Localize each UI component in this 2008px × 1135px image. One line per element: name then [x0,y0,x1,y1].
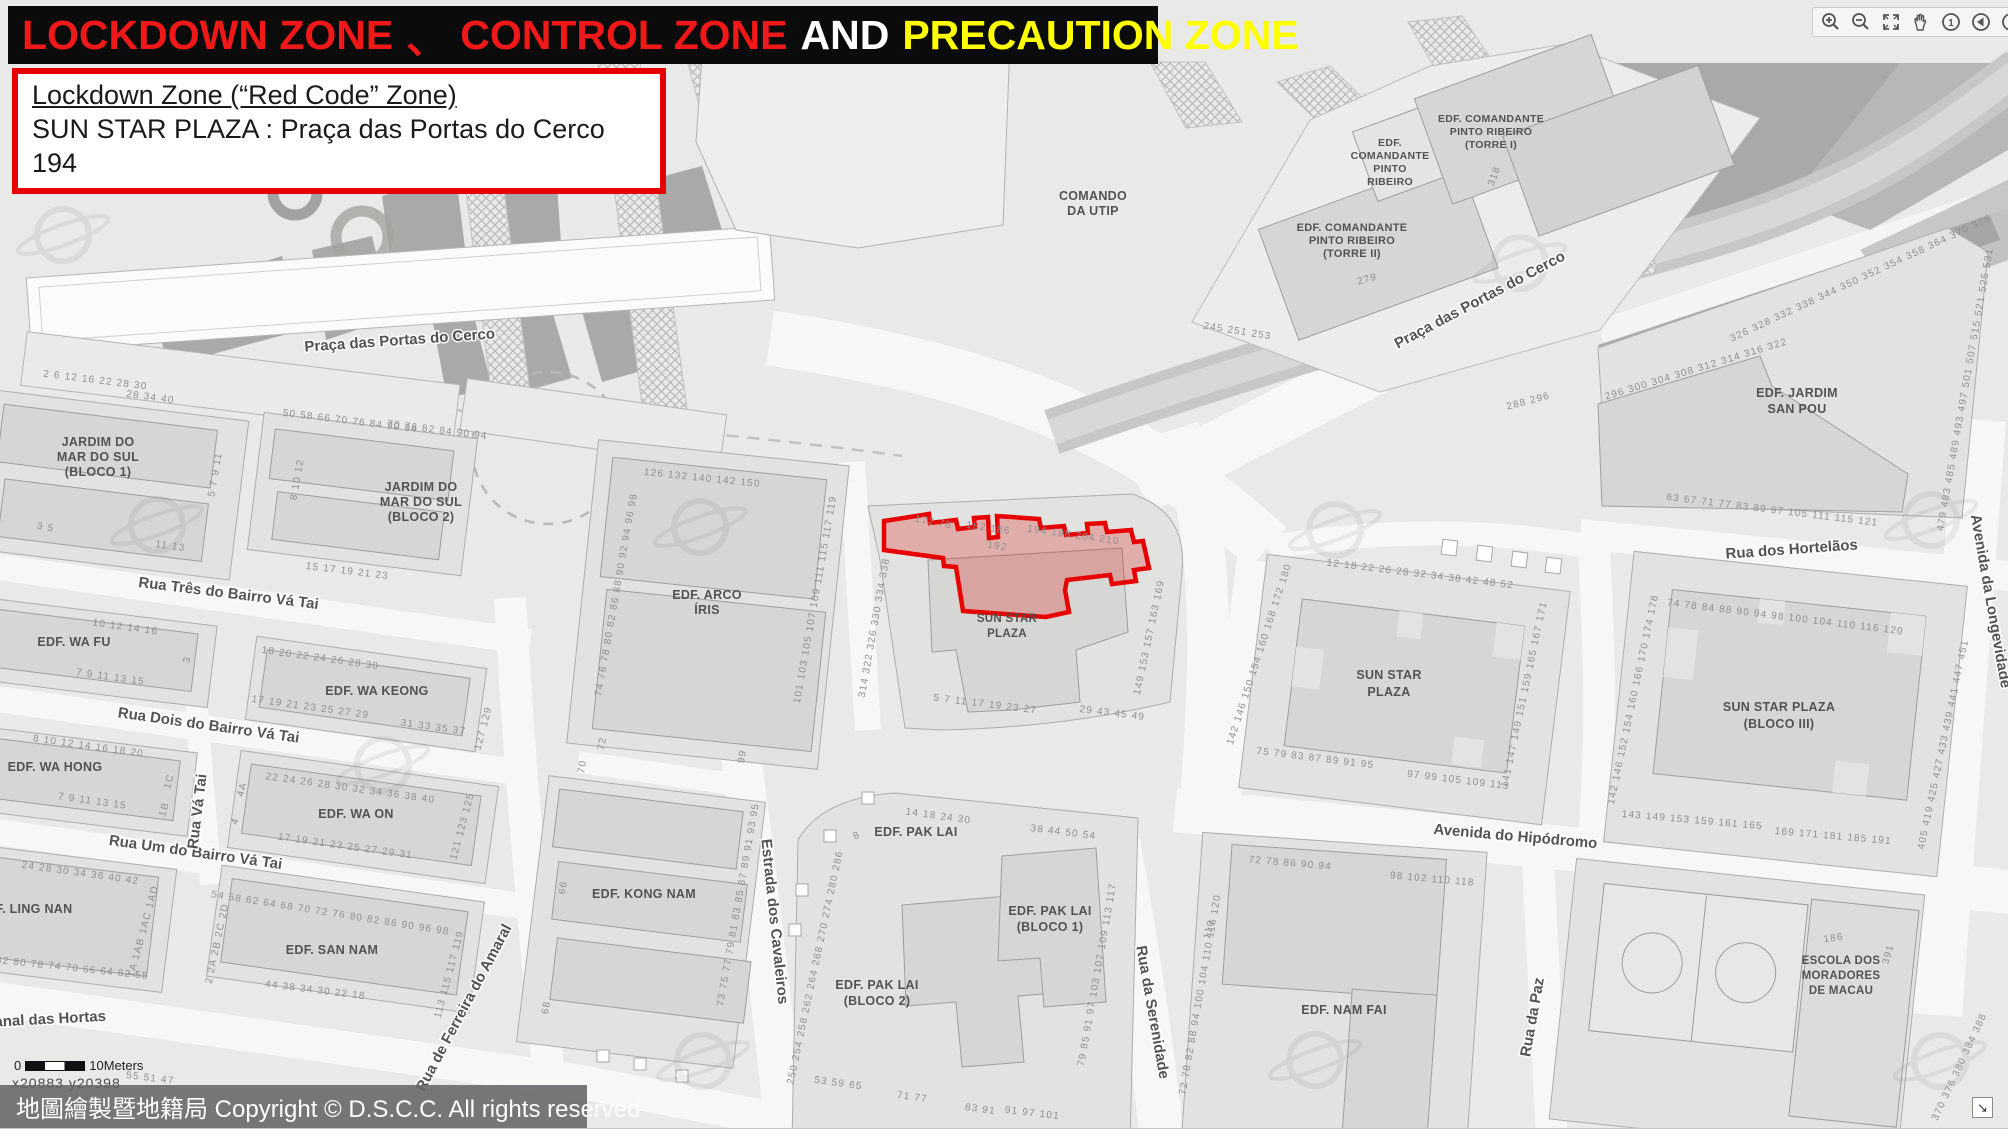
next-view-button[interactable] [1999,10,2008,34]
title-part: AND [801,12,890,59]
building-label: SAN POU [1767,402,1826,416]
screenshot-stage: Praça das Portas do CercoPraça das Porta… [0,0,2008,1135]
parcel-number: 68 [540,1000,553,1015]
building-label: EDF. PAK LAI [835,978,918,992]
zoom-out-icon [1850,11,1872,33]
building-label: (TORRE II) [1323,248,1381,260]
hand-pan-icon [1910,11,1932,33]
info-box-address: SUN STAR PLAZA : Praça das Portas do Cer… [32,113,646,181]
building-label: (BLOCO III) [1744,717,1815,731]
full-extent-button[interactable] [1879,10,1903,34]
building-label: MORADORES [1802,970,1881,982]
scale-zero-label: 0 [14,1058,21,1073]
building-label: EDF. WA ON [318,807,393,821]
building-label: EDF. SAN NAM [286,943,379,957]
building-label: EDF. PAK LAI [874,825,957,839]
building-label: EDF. NAM FAI [1301,1003,1387,1017]
building-label: DE MACAU [1809,985,1873,997]
building-label: SUN STAR [1356,668,1421,682]
svg-text:1: 1 [1948,18,1954,29]
building-label: SUN STAR PLAZA [1723,700,1835,714]
building-label: EDF. WA FU [37,635,110,649]
parcel-number: 72 [596,736,609,751]
building-label: PLAZA [1367,685,1410,699]
building-label: ÍRIS [694,602,720,617]
building-label: (TORRE I) [1465,139,1517,151]
title-part: CONTROL ZONE [460,12,787,59]
building-label: JARDIM DO [62,435,135,449]
parcel-number: 70 [576,759,589,774]
building-label: PINTO [1373,163,1406,175]
resize-handle-button[interactable]: ↘ [1972,1097,1993,1118]
building-label: EDF. ARCO [672,588,742,602]
zoom-in-icon [1820,11,1842,33]
building-label: EDF. WA HONG [8,760,103,774]
initial-view-icon: 1 [1940,11,1962,33]
info-box-heading: Lockdown Zone (“Red Code” Zone) [32,79,646,113]
building-label: EDF. JARDIM [1756,386,1838,400]
back-arrow-icon [1970,11,1992,33]
title-part: LOCKDOWN ZONE [22,12,393,59]
resize-arrow-icon: ↘ [1977,1100,1988,1116]
building-label: EDF. COMANDANTE [1297,222,1408,234]
building-label: EDF. LING NAN [0,902,72,916]
title-part: 、 [406,5,447,65]
initial-view-button[interactable]: 1 [1939,10,1963,34]
parcel-number: 66 [557,880,570,895]
building-label: COMANDANTE [1351,150,1430,162]
building-label: EDF. WA KEONG [325,684,428,698]
building-label: (BLOCO 1) [65,465,132,479]
scale-units-label: 10Meters [89,1058,143,1073]
copyright-bar: 地圖繪製暨地籍局 Copyright © D.S.C.C. All rights… [0,1085,587,1128]
building-label: EDF. KONG NAM [592,887,696,901]
title-part: PRECAUTION ZONE [902,12,1298,59]
building-label: (BLOCO 1) [1017,920,1084,934]
zoom-out-button[interactable] [1849,10,1873,34]
building-label: MAR DO SUL [380,495,462,509]
building-label: PINTO RIBEIRO [1309,235,1395,247]
forward-arrow-icon [2000,11,2008,33]
map-toolbar: 1 [1812,7,2008,37]
building-label: SUN STAR [977,613,1038,625]
scale-strip [25,1061,85,1071]
building-label: COMANDO [1059,189,1127,203]
building-label: MAR DO SUL [57,450,139,464]
building-label: (BLOCO 2) [844,994,911,1008]
building-label: DA UTIP [1067,204,1119,218]
expand-arrows-icon [1880,11,1902,33]
previous-view-button[interactable] [1969,10,1993,34]
bottom-strip [0,1128,2008,1135]
building-label: EDF. [1378,137,1402,149]
building-label: (BLOCO 2) [388,510,455,524]
building-label: PLAZA [987,628,1027,640]
building-label: JARDIM DO [385,480,458,494]
lockdown-info-box: Lockdown Zone (“Red Code” Zone) SUN STAR… [12,68,666,194]
pan-button[interactable] [1909,10,1933,34]
copyright-text: 地圖繪製暨地籍局 Copyright © D.S.C.C. All rights… [16,1089,641,1124]
title-bar: LOCKDOWN ZONE、CONTROL ZONEANDPRECAUTION … [8,6,1158,64]
scale-bar: 0 10Meters [14,1058,143,1073]
building-label: PINTO RIBEIRO [1450,126,1532,138]
building-label: RIBEIRO [1367,176,1413,188]
parcel-number: 99 [736,749,749,764]
building-label: EDF. PAK LAI [1008,904,1091,918]
zoom-in-button[interactable] [1819,10,1843,34]
building-label: ESCOLA DOS [1802,955,1881,967]
building-label: EDF. COMANDANTE [1438,113,1544,125]
